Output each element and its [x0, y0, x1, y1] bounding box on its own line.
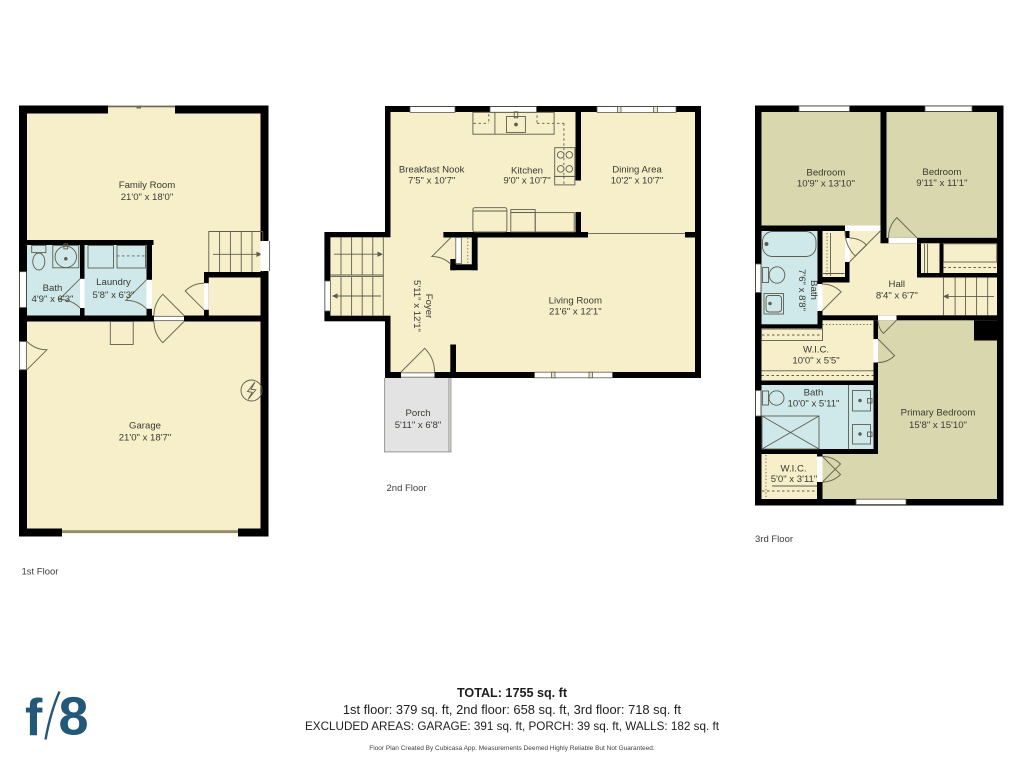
svg-text:W.I.C.: W.I.C.	[780, 464, 806, 475]
svg-text:Hall: Hall	[889, 279, 906, 290]
svg-text:Bedroom: Bedroom	[806, 168, 845, 179]
svg-text:10'0" x 5'11": 10'0" x 5'11"	[788, 399, 840, 410]
svg-text:Bath: Bath	[804, 388, 824, 399]
svg-text:Floor Plan Created By Cubicasa: Floor Plan Created By Cubicasa App. Meas…	[369, 745, 655, 752]
svg-text:7'5" x 10'7": 7'5" x 10'7"	[408, 176, 455, 187]
svg-text:3rd Floor: 3rd Floor	[755, 534, 793, 545]
svg-text:Laundry: Laundry	[96, 277, 131, 288]
svg-text:W.I.C.: W.I.C.	[803, 345, 829, 356]
svg-text:7'6" x 8'8": 7'6" x 8'8"	[796, 269, 807, 311]
svg-text:Living Room: Living Room	[549, 296, 602, 307]
svg-text:EXCLUDED AREAS: GARAGE: 391 sq: EXCLUDED AREAS: GARAGE: 391 sq. ft, PORC…	[305, 720, 720, 733]
svg-text:21'0" x 18'0": 21'0" x 18'0"	[121, 192, 174, 203]
svg-text:Dining Area: Dining Area	[612, 165, 662, 176]
svg-text:1st Floor: 1st Floor	[22, 567, 59, 578]
svg-text:Garage: Garage	[129, 421, 161, 432]
svg-text:Bath: Bath	[808, 280, 819, 300]
svg-text:10'0" x 5'5": 10'0" x 5'5"	[792, 355, 839, 366]
svg-text:Foyer: Foyer	[423, 294, 434, 319]
svg-text:Breakfast Nook: Breakfast Nook	[399, 164, 465, 175]
svg-text:9'11" x 11'1": 9'11" x 11'1"	[916, 178, 967, 189]
svg-text:21'6" x 12'1": 21'6" x 12'1"	[549, 307, 602, 318]
svg-text:f: f	[25, 689, 43, 747]
svg-text:1st floor: 379 sq. ft, 2nd flo: 1st floor: 379 sq. ft, 2nd floor: 658 sq…	[343, 702, 682, 717]
svg-text:10'9" x 13'10": 10'9" x 13'10"	[797, 179, 855, 190]
svg-text:5'0" x 3'11": 5'0" x 3'11"	[771, 474, 818, 485]
svg-text:8'4" x 6'7": 8'4" x 6'7"	[876, 291, 918, 302]
svg-text:5'8" x 6'3": 5'8" x 6'3"	[93, 290, 135, 301]
svg-text:15'8" x 15'10": 15'8" x 15'10"	[909, 420, 967, 431]
svg-text:Primary Bedroom: Primary Bedroom	[901, 408, 976, 419]
svg-text:Bath: Bath	[43, 283, 63, 294]
svg-text:Family Room: Family Room	[119, 180, 176, 191]
svg-text:5'11" x 6'8": 5'11" x 6'8"	[395, 420, 442, 431]
svg-text:8: 8	[59, 687, 89, 747]
svg-text:Bedroom: Bedroom	[922, 167, 961, 178]
svg-text:21'0" x 18'7": 21'0" x 18'7"	[119, 433, 172, 444]
svg-text:10'2" x 10'7": 10'2" x 10'7"	[611, 176, 664, 187]
svg-text:2nd Floor: 2nd Floor	[387, 483, 427, 494]
svg-text:9'0" x 10'7": 9'0" x 10'7"	[503, 175, 550, 186]
svg-text:4'9" x 6'3": 4'9" x 6'3"	[32, 294, 74, 305]
svg-text:Porch: Porch	[405, 408, 430, 419]
svg-text:5'11" x 12'1": 5'11" x 12'1"	[411, 280, 422, 332]
svg-text:TOTAL: 1755 sq. ft: TOTAL: 1755 sq. ft	[457, 686, 568, 700]
